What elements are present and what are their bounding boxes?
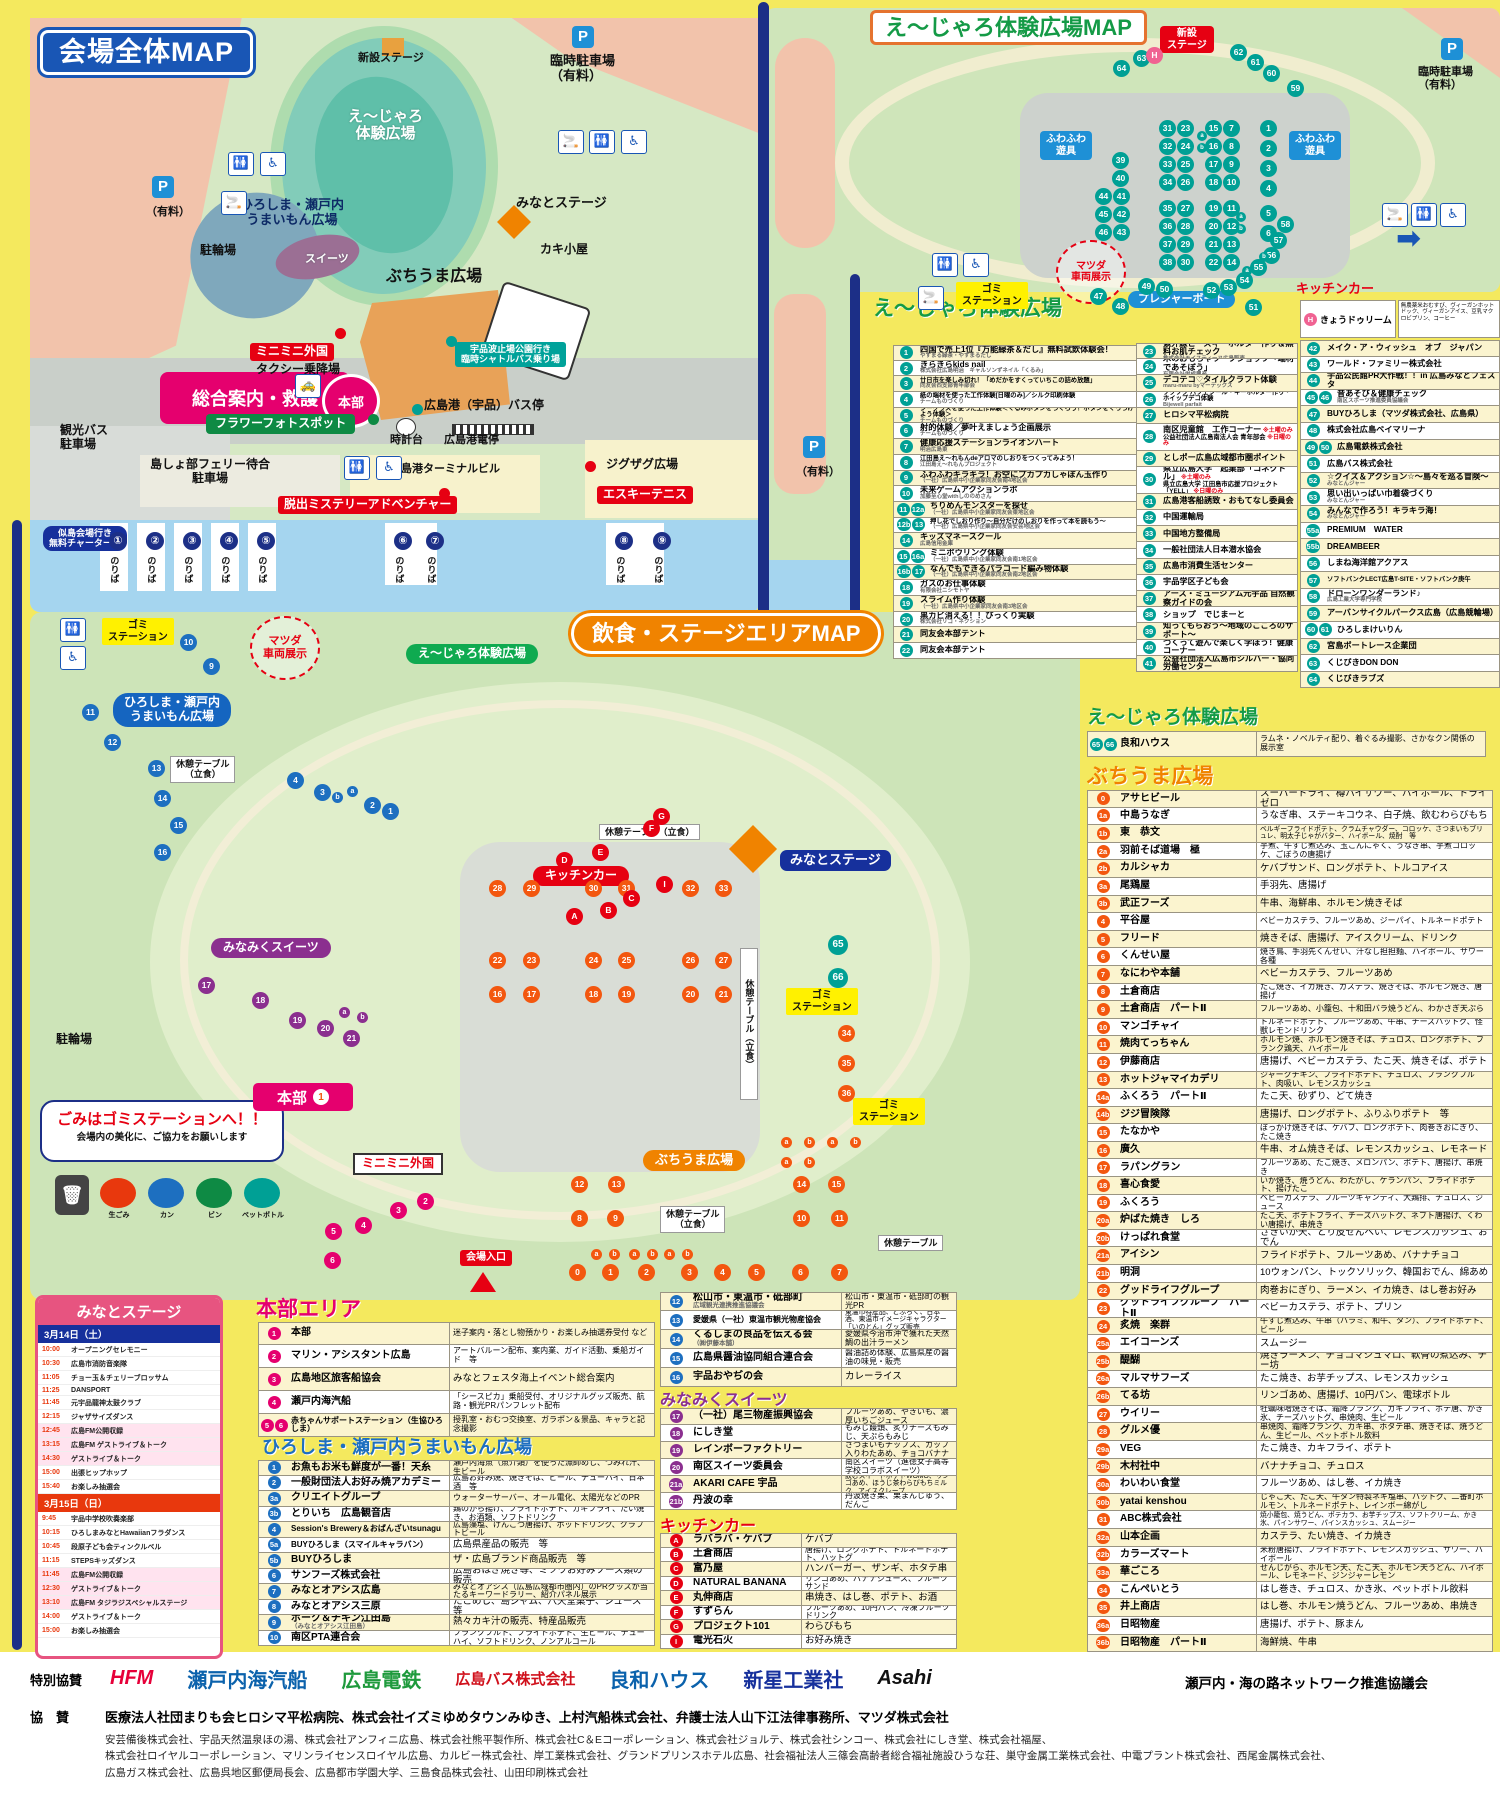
vendor-name: 明洞 [1120,1268,1254,1279]
vendor-name: 炉ばた焼き しろ [1120,1215,1254,1226]
list-row: 9ふわふわキラキラ！お空にプカプカしゃぼん玉作り（一社）広島県中小企業家同友会南… [893,471,1140,487]
vendor-name: アサヒビール [1120,794,1254,805]
stage-program-row: 9:45宇品中学校吹奏楽部 [38,1512,220,1526]
map-marker: ⑨ [653,532,671,550]
wheelchair-icon: ♿ [1440,203,1466,227]
item-number-badge: 18 [1097,1179,1110,1192]
map-marker [412,404,423,415]
vendor-menu: みなとフェスタ海上イベント総合案内 [449,1368,654,1390]
item-number-badge: 1 [900,346,913,359]
wheelchair-icon: ♿ [621,130,647,154]
vendor-name: しまね海洋館アクアス [1327,559,1497,568]
list-row: 3広島地区旅客船協会みなとフェスタ海上イベント総合案内 [258,1368,655,1391]
vendor-name: フリード [1120,934,1254,945]
map-marker: ⑧ [615,532,633,550]
vendor-name: 中国地方整備局 [1163,530,1295,539]
vendor-menu: 飲むスイートポテトWOMO、リンゴあめ、ほうじ茶わらびもちミルク、アイスクレープ [841,1476,956,1492]
list-row: 21aアイシンフライドポテト、フルーツあめ、バナナチョコ [1087,1247,1493,1265]
map-label: のりば [615,556,625,583]
item-number-badge: E [670,1591,683,1604]
item-number-badge: 16b [897,565,912,578]
item-number-badge: 6 [275,1419,288,1432]
item-number-badge: 13 [670,1314,683,1327]
list-row: 26aマルマサフーズたこ焼き、お芋チップス、レモンスカッシュ [1087,1371,1493,1389]
item-number-badge: 61 [1319,623,1332,636]
map-marker: 58 [1277,216,1294,233]
item-number-badge: 18 [900,581,913,594]
list-row: 2一般財団法人お好み焼アカデミー広島お好み焼、焼きそば、ビール、チューハイ、日本… [258,1476,655,1492]
map-label: （有料） [146,206,190,219]
ejaro-list2-title: え〜じゃろ体験広場 [1087,702,1258,729]
vendor-menu: 唐揚げ、ロングポテト、ふりふりポテト 等 [1256,1107,1492,1124]
vendor-name: ショップ でじまーと [1163,611,1295,620]
vendor-org: やすまる緑茶・やすまるだし [920,354,1137,360]
map-marker: 22 [489,952,506,969]
list-row: 16b17なんでもできるパラコード編み物体験（一社）広島県中小企業家同友会南2地… [893,565,1140,581]
list-row: 39知ってもらおう〜地域のこころのサポート〜 [1136,623,1298,639]
vendor-name: サンフーズ株式会社 [291,1571,447,1582]
map-label: ミニミニ外国 [353,1153,443,1175]
item-number-badge: 16 [1097,1144,1110,1157]
map-label: 観光バス 駐車場 [60,424,108,452]
map-marker: 48 [1112,298,1129,315]
vendor-menu: 広島県産品の販売 等 [449,1538,654,1553]
vendor-org: 加藤至心堂withしののめさん [920,495,1137,501]
vendor-menu: うなぎ串、ステーキコウネ、白子焼、飲むわらびもち [1256,808,1492,825]
smoking-icon: 🚬 [221,191,247,215]
vendor-org: （一社）広島県中小企業家同友会南3地区会 [920,605,1137,611]
sponsor-logo: 瀬戸内海汽船 [187,1664,307,1693]
map-label: フラワーフォトスポット [206,414,355,434]
vendor-name: 広島県醤油協同組合連合会 [693,1353,839,1364]
vendor-name: くじびきDON DON [1327,659,1497,668]
item-number-badge: 6 [900,424,913,437]
vendor-menu: みなとオアシス（広島広域都市圏内）のPRグッズが当たるキーワードラリー、紹介パネ… [449,1584,654,1599]
vendor-name: 宇品おやぢの会 [693,1372,839,1383]
list-row: 3bとりいち 広島観音店鶏のから揚げ、フライドポテト、カキフライ、たい焼き、お酒… [258,1507,655,1523]
map-marker: 14 [1223,254,1240,271]
vendor-name: 赤ちゃんサポートステーション（生協ひろしま） [291,1417,447,1434]
vendor-menu: ハンバーガー、ザンギ、ホタテ串 [801,1562,956,1576]
map-marker: 16 [1205,138,1222,155]
item-number-badge: 22 [900,644,913,657]
item-number-badge: 36a [1096,1619,1111,1632]
item-number-badge: 13 [1097,1073,1110,1086]
map-marker: 22 [1205,254,1222,271]
map-marker: 34 [838,1025,855,1042]
list-row: 59アーバンサイクルパークス広島（広島競輪場） [1300,606,1500,623]
map-marker: 25 [1177,156,1194,173]
item-number-badge: 14a [1096,1091,1111,1104]
program-name: ゲストライブ＆トーク [71,1612,141,1622]
list-row: 16廣久牛串、オム焼きそば、レモンスカッシュ、レモネード [1087,1142,1493,1160]
item-number-badge: 4 [1097,915,1110,928]
item-number-badge: 35 [1143,560,1156,573]
map-marker: 53 [1220,279,1237,296]
map-label: 広島港（宇品）バス停 [424,399,544,413]
vendor-menu: アートバルーン配布、案内業、ガイド活動、乗船ガイド 等 [449,1345,654,1367]
vendor-name: 株式会社広島ベイマリーナ [1327,426,1497,435]
map-marker: 1 [602,1264,619,1281]
vendor-menu: たこ天、ポテトフライ、チーズハットグ、ネブト唐揚げ、くわい唐揚げ、串焼き [1256,1212,1492,1229]
vendor-menu: フランクフルト、フライドポテト、生ビール、チューハイ、ソフトドリンク、ノンアルコ… [449,1631,654,1646]
map-marker: a [591,1249,602,1260]
program-time: 11:25 [42,1387,68,1394]
item-number-badge: 3 [268,1373,281,1386]
list-row: 18ガスのお仕事体験有限会社ニシモトヤ [893,580,1140,596]
map-marker [439,488,450,499]
parking-icon: P [572,26,594,48]
recycle-bin-icon [244,1178,280,1208]
item-number-badge: 19 [900,597,913,610]
map-marker: ③ [183,532,201,550]
list-row: 5bBUYひろしまザ・広島ブランド商品販売 等 [258,1553,655,1569]
vendor-menu: たこめし、島ジャム、八天堂菓子、ジュース 等 [449,1600,654,1615]
ejaro-list-col1: 1四国で売上1位『万能緑茶＆だし』無料試飲体験会！やすまる緑茶・やすまるだし2き… [893,345,1140,659]
item-number-badge: 4 [268,1396,281,1409]
program-time: 14:00 [42,1613,68,1620]
vendor-name: 広島地区旅客船協会 [291,1374,447,1385]
vendor-org: （一社）広島県中小企業家同友会南2地区会 [930,573,1137,579]
map-marker: 47 [1090,288,1107,305]
vendor-menu: 愛媛県今治市沖で獲れた天然鯛の出汁ラーメン [841,1330,956,1348]
vendor-menu: 広島藻塩、げんこつ唐揚げ、ホットドリンク、クラフトビール [449,1522,654,1537]
map-label: 新設ステージ [358,52,424,65]
map-label: ジグザグ広場 [606,458,678,472]
vendor-menu: 串焼き、はし巻、ポテト、お酒 [801,1591,956,1605]
vendor-name: とりいち 広島観音店 [291,1509,447,1520]
list-row: 12松山市・東温市・砥部町広域観光連携推進協議会松山市・東温市・砥部町の観光PR [660,1292,957,1311]
item-number-badge: 31 [1143,495,1156,508]
program-time: 12:15 [42,1413,68,1420]
program-name: DANSPORT [71,1387,110,1394]
vendor-menu: たこ天、砂ずり、どて焼き [1256,1089,1492,1106]
map-marker: 17 [523,986,540,1003]
list-row: 29b木村社中バナナチョコ、チュロス [1087,1459,1493,1477]
map-marker: 23 [1177,120,1194,137]
vendor-org: 南区スポーツ推進委員協議会 [1337,399,1497,405]
kyosan-line: 医療法人社団まりも会ヒロシマ平松病院、株式会社イズミゆめタウンみゆき、上村汽船株… [105,1707,949,1726]
list-row: 30aわいわい食堂フルーツあめ、はし巻、イカ焼き [1087,1476,1493,1494]
map-marker: 16 [489,986,506,1003]
map-marker: 24 [585,952,602,969]
vendor-name: ラパングラン [1120,1163,1254,1174]
map-label: のりば [426,556,436,583]
recycle-bin-label: ビン [192,1210,238,1220]
panel-divider [850,274,860,640]
map-marker: 13 [1223,236,1240,253]
item-number-badge: 9 [1097,1003,1110,1016]
vendor-menu: フルーツあめ、たこ焼き、メロンパン、ポテト、唐揚げ、串焼き [1256,1159,1492,1176]
item-number-badge: 44 [1307,374,1320,387]
recycle-bin-label: ペットボトル [240,1210,286,1220]
list-row: 5aBUYひろしま（スマイルキャラバン）広島県産品の販売 等 [258,1538,655,1554]
list-row: B土倉商店唐揚げ、ロングポテト、トルネードポテト、ハットグ [660,1548,957,1563]
map-label: のりば [183,556,193,583]
list-row: 5フリード焼きそば、唐揚げ、アイスクリーム、ドリンク [1087,931,1493,949]
smoking-icon: 🚬 [918,286,944,310]
map-marker: 9 [1223,156,1240,173]
vendor-name: レインボーファクトリー [693,1445,839,1456]
vendor-org: みなとんジャー [1327,482,1497,488]
program-time: 15:40 [42,1483,68,1490]
map-marker: 1 [1260,120,1277,137]
vendor-name: 日昭物産 [1120,1620,1254,1631]
vendor-org: （一社）広島県中小企業家同友会東地区会 [930,511,1137,517]
map-label: 休憩テーブル （立食） [170,756,235,783]
map-marker: 59 [1287,80,1304,97]
list-row: 58ドローンワンダーランド♪広島工業大学専門学校 [1300,589,1500,606]
item-number-badge: 8 [268,1600,281,1613]
map-marker: 2 [364,797,381,814]
vendor-name: プロジェクト101 [693,1622,799,1633]
stage-program-row: 15:00出張ヒップホップ [38,1466,220,1480]
vendor-menu: ケバブ [801,1534,956,1547]
map-marker: 31 [1159,120,1176,137]
program-name: お楽しみ抽選会 [71,1626,120,1636]
trash-bin-icon: 🗑 [55,1175,89,1215]
food-map-title: 飲食・ステージエリアMAP [571,613,881,654]
list-row: 13愛媛県（一社）東温市観光物産協会東温市特産品、どぶろく、日本酒、東温市イメー… [660,1311,957,1330]
list-row: 14くるしまの良品を伝える会（㈱伊藤本舗）愛媛県今治市沖で獲れた天然鯛の出汁ラー… [660,1330,957,1349]
map-marker: 34 [1159,174,1176,191]
map-marker: 46 [1095,224,1112,241]
list-row: 55aPREMIUM WATER [1300,523,1500,540]
vendor-menu: スーパードライ、樽ハイサワー、ハイボール、ドライゼロ [1256,791,1492,807]
program-name: チョー玉＆チェリーブロッサム [71,1373,168,1383]
vendor-name: 武正フーズ [1120,899,1254,910]
program-name: 広島市消防音楽隊 [71,1359,127,1369]
ejaro-plaza-map [765,8,1500,292]
vendor-menu: 焼きそば、唐揚げ、アイスクリーム、ドリンク [1256,931,1492,948]
map-marker: 5 [325,1223,342,1240]
vendor-org: 同友会西支部青年部会 [920,384,1137,390]
vendor-name: 木のおもちゃワークショップ「端材であそぼう」 [1163,359,1295,372]
map-marker: 1 [382,803,399,820]
item-number-badge: 10 [900,487,913,500]
item-number-badge: 24 [1143,360,1156,373]
kitchen-list: Aラバラバ・ケバブケバブB土倉商店唐揚げ、ロングポテト、トルネードポテト、ハット… [660,1533,957,1649]
item-number-badge: 30b [1096,1496,1111,1509]
program-name: 出張ヒップホップ [71,1468,127,1478]
list-row: 12伊藤商店唐揚げ、ベビーカステラ、たこ天、焼きそば、ポテト [1087,1054,1493,1072]
vendor-menu: さつまいもチップス、カップ入りわたあめ、チョコバナナ [841,1442,956,1458]
list-row: 10未来ゲームアクションラボ加藤至心堂withしののめさん [893,486,1140,502]
map-marker: b [682,1249,693,1260]
map-marker: 14 [154,790,171,807]
vendor-name: 南区PTA連合会 [291,1633,447,1644]
vendor-org: （一社）広島県中小企業家同友会南4地区会 [920,479,1137,485]
vendor-name: クリエイトグループ [291,1493,447,1504]
wheelchair-icon: ♿ [260,152,286,176]
vendor-org: みなとんジャー [1327,499,1497,505]
vendor-name: 同友会本部テント [920,630,1137,639]
list-row: 2マリン・アシスタント広島アートバルーン配布、案内業、ガイド活動、乗船ガイド 等 [258,1345,655,1368]
map-marker: 62 [1230,44,1247,61]
list-row: 0アサヒビールスーパードライ、樽ハイサワー、ハイボール、ドライゼロ [1087,790,1493,808]
map-marker: 4 [1260,180,1277,197]
vendor-name: VEG [1120,1444,1254,1455]
map-marker: 20 [682,986,699,1003]
vendor-name: 宇品学区子ども会 [1163,578,1295,587]
map-marker: 4 [714,1264,731,1281]
uma-list: 1お魚もお米も鮮度が一番！天糸瀬戸内海魚（魚介類）を使った漁師めし、つみれ汁、生… [258,1460,655,1646]
mazda-display-area: マツダ 車両展示 [250,616,320,680]
map-marker: a [347,786,358,797]
map-marker: 10 [793,1210,810,1227]
program-time: 11:15 [42,1557,68,1564]
item-number-badge: 3b [1097,897,1110,910]
ejaro-map-title: え〜じゃろ体験広場MAP [870,10,1147,45]
map-label: 宇品波止場公園行き 臨時シャトルバス乗り場 [455,342,566,367]
vendor-name: ウイリー [1120,1409,1254,1420]
vendor-name: 伊藤商店 [1120,1057,1254,1068]
map-marker: B [600,902,617,919]
vendor-name: 瀬戸内海汽船 [291,1397,447,1408]
item-number-badge: 28 [1097,1425,1110,1438]
stage-program-row: 11:45広島FM公開収録 [38,1568,220,1582]
vendor-menu: カステラ、たい焼き、イカ焼き [1256,1529,1492,1546]
map-marker: a [1236,212,1246,222]
item-number-badge: 23 [1097,1302,1110,1315]
vendor-name: 愛媛県（一社）東温市観光物産協会 [693,1316,839,1324]
map-label: え〜じゃろ体験広場 [406,644,538,664]
map-marker: a [781,1157,792,1168]
map-marker: 21 [715,986,732,1003]
map-marker: 38 [1159,254,1176,271]
vendor-org: チームものづくり [920,432,1137,438]
list-row: 19レインボーファクトリーさつまいもチップス、カップ入りわたあめ、チョコバナナ [660,1442,957,1459]
vendor-name: アイシン [1120,1250,1254,1261]
stage-program-row: 12:15ジャザサイズダンス [38,1410,220,1424]
list-row: 4平谷屋ベビーカステラ、フルーツあめ、ジーパイ、トルネードポテト [1087,913,1493,931]
map-marker: a [339,1007,350,1018]
map-marker: 2 [417,1193,434,1210]
program-name: ひろしまみなとHawaiianフラダンス [71,1528,185,1538]
map-marker: 25 [618,952,635,969]
panel-divider [758,2,769,636]
vendor-name: わいわい食堂 [1120,1479,1254,1490]
map-marker: 39 [1112,152,1129,169]
vendor-menu: いか焼き、焼うどん、わたがし、ケランパン、フライドポテト、揚げたこ [1256,1177,1492,1194]
map-marker: 64 [1113,60,1130,77]
stage-program-row: 11:25DANSPORT [38,1385,220,1396]
item-number-badge: 21b [1096,1267,1111,1280]
stage-program-row: 13:15広島FM ゲストライブ＆トーク [38,1438,220,1452]
map-marker: 30 [1177,254,1194,271]
list-row: 3a尾鶏屋手羽先、唐揚げ [1087,878,1493,896]
map-marker: b [1197,143,1207,153]
kitchen-h-row: H きょうドゥリーム 無農薬米おむすび、ヴィーガンホットドック、ヴィーガンアイス… [1300,300,1500,338]
item-number-badge: 42 [1307,342,1320,355]
map-marker: ⑥ [394,532,412,550]
program-name: 広島FM タジラジスペシャルステージ [71,1598,187,1608]
vendor-menu: たこ焼き、イカ焼き、カステラ、焼きそば、ホルモン焼き、唐揚げ [1256,984,1492,1001]
vendor-name: 広島港客船誘致・おもてなし委員会 [1163,497,1295,506]
map-marker: b [1236,224,1246,234]
vendor-menu: 瀬戸内海魚（魚介類）を使った漁師めし、つみれ汁、生ビール [449,1461,654,1475]
vendor-name: なにわや本舗 [1120,969,1254,980]
list-row: 53思い出いっぱい巾着袋づくりみなとんジャー [1300,489,1500,506]
vendor-org: （㈱伊藤本舗） [693,1341,839,1348]
list-row: 3b武正フーズ牛串、海鮮串、ホルモン焼きそば [1087,896,1493,914]
vendor-name: 炙焼 楽群 [1120,1321,1254,1332]
map-marker: 19 [1205,200,1222,217]
item-number-badge: 29a [1096,1443,1111,1456]
vendor-name: DREAMBEER [1327,543,1497,552]
map-label: ミニミニ外国 [250,343,334,361]
stage-program-row: 12:45広島FM公開収録 [38,1424,220,1438]
program-name: 広島FM公開収録 [71,1426,123,1436]
sweets-title: みなみくスイーツ [660,1386,788,1410]
item-number-badge: 41 [1143,657,1156,670]
program-name: ゲストライブ＆トーク [71,1584,141,1594]
map-marker: 6 [324,1252,341,1269]
vendor-name: 土倉商店 [693,1549,799,1560]
vendor-menu: 10ウォンパン、トックソリック、韓国おでん、綿あめ [1256,1265,1492,1282]
vendor-name: 紫外線ビーズキーホルダー作り＆無料お肌チェック [1163,343,1295,357]
ehime-list: 12松山市・東温市・砥部町広域観光連携推進協議会松山市・東温市・砥部町の観光PR… [660,1292,957,1387]
list-row: 30byatai kenshouじゃこ天、たこ天、牛タン特製ネギ塩串、ハットグ、… [1087,1494,1493,1512]
item-number-badge: 30 [1143,473,1156,486]
program-name: STEPSキッズダンス [71,1556,136,1566]
vendor-menu: ラムネ・ノベルティ配り、着ぐるみ撮影、さかなクン関係の展示室 [1256,732,1485,756]
item-number-badge: 36 [1143,576,1156,589]
vendor-name: 井上商店 [1120,1602,1254,1613]
vendor-menu: 南区スイーツ（進徳女子高等学校コラボスイーツ） [841,1459,956,1475]
vendor-menu: 焼小籠包、焼うどん、ポテカラ、お芋チップス、ソフトクリーム、かき氷、パインサワー… [1256,1511,1492,1528]
vendor-name: 廣久 [1120,1145,1254,1156]
stage-program-row: 10:00オープニングセレモニー [38,1343,220,1357]
map-marker: 30 [585,880,602,897]
list-row: 8土倉商店たこ焼き、イカ焼き、カステラ、焼きそば、ホルモン焼き、唐揚げ [1087,984,1493,1002]
item-number-badge: 26b [1096,1390,1111,1403]
sponsor-logo: 良和ハウス [609,1664,709,1693]
recycle-bin-label: 生ごみ [96,1210,142,1220]
vendor-menu: 芋煮、牛すじ煮込み、玉こんにゃく、うなぎ串、芋煮コロッケ、ごぼうの唐揚げ [1256,843,1492,860]
vendor-name: みなとオアシス三原 [291,1602,447,1613]
item-number-badge: 22 [1097,1284,1110,1297]
map-label: 時計台 [390,434,423,447]
vendor-org: （一社）広島県中小企業家同友会南1地区会 [930,558,1137,564]
vendor-menu: ケバブサンド、ロングポテト、トルコアイス [1256,860,1492,877]
item-number-badge: 25a [1096,1337,1111,1350]
item-number-badge: 26 [1143,393,1156,406]
item-number-badge: 60 [1305,623,1318,636]
map-marker: 2 [638,1264,655,1281]
restroom-icon: 🚻 [932,253,958,277]
stage-program-row: 10:45段原子ども会ティンクルベル [38,1540,220,1554]
map-label: え〜じゃろ 体験広場 [348,108,423,143]
item-number-badge: 5 [900,409,913,422]
vendor-name: 県立広島大学 江田島市応援プロジェクト「YELL」 ※日曜のみ [1163,482,1295,494]
item-number-badge: 20 [900,613,913,626]
item-number-badge: 46 [1319,391,1332,404]
map-marker: b [357,1012,368,1023]
vendor-name: （一社）尾三物産振興協会 [693,1411,839,1422]
vendor-menu: はし巻き、チュロス、かき氷、ペットボトル飲料 [1256,1582,1492,1599]
map-marker: ⑦ [426,532,444,550]
vendor-menu: ベルギーフライドポテト、クラムチャウダー、コロッケ、さつまいもブリュレ、明太子じ… [1256,825,1492,842]
item-number-badge: 63 [1307,657,1320,670]
vendor-name: ジジ冒険隊 [1120,1110,1254,1121]
vendor-org: 江田島え〜れもんプロジェクト [920,463,1137,469]
program-time: 11:45 [42,1571,68,1578]
item-number-badge: 52 [1307,474,1320,487]
list-row: 35井上商店はし巻、ホルモン焼うどん、フルーツあめ、串焼き [1087,1599,1493,1617]
list-row: 54みんなで作ろう！キラキラ海！みなとんジャー [1300,506,1500,523]
map-marker: ④ [220,532,238,550]
